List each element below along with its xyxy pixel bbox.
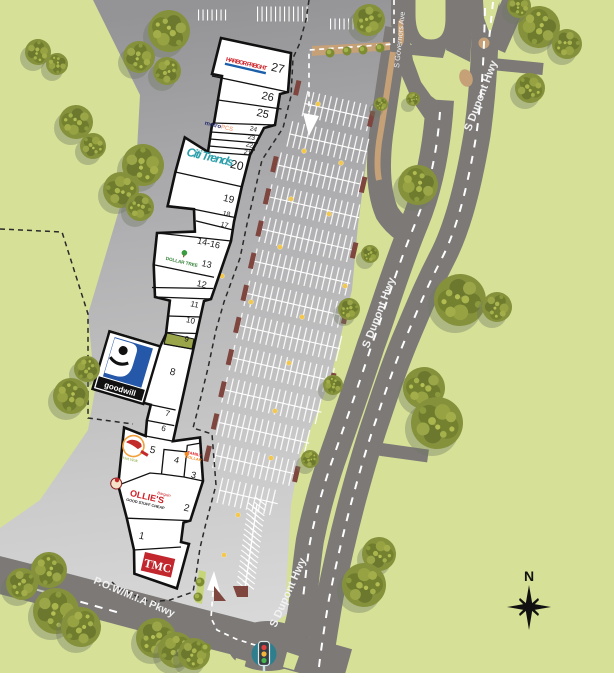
svg-text:N: N bbox=[524, 568, 534, 584]
